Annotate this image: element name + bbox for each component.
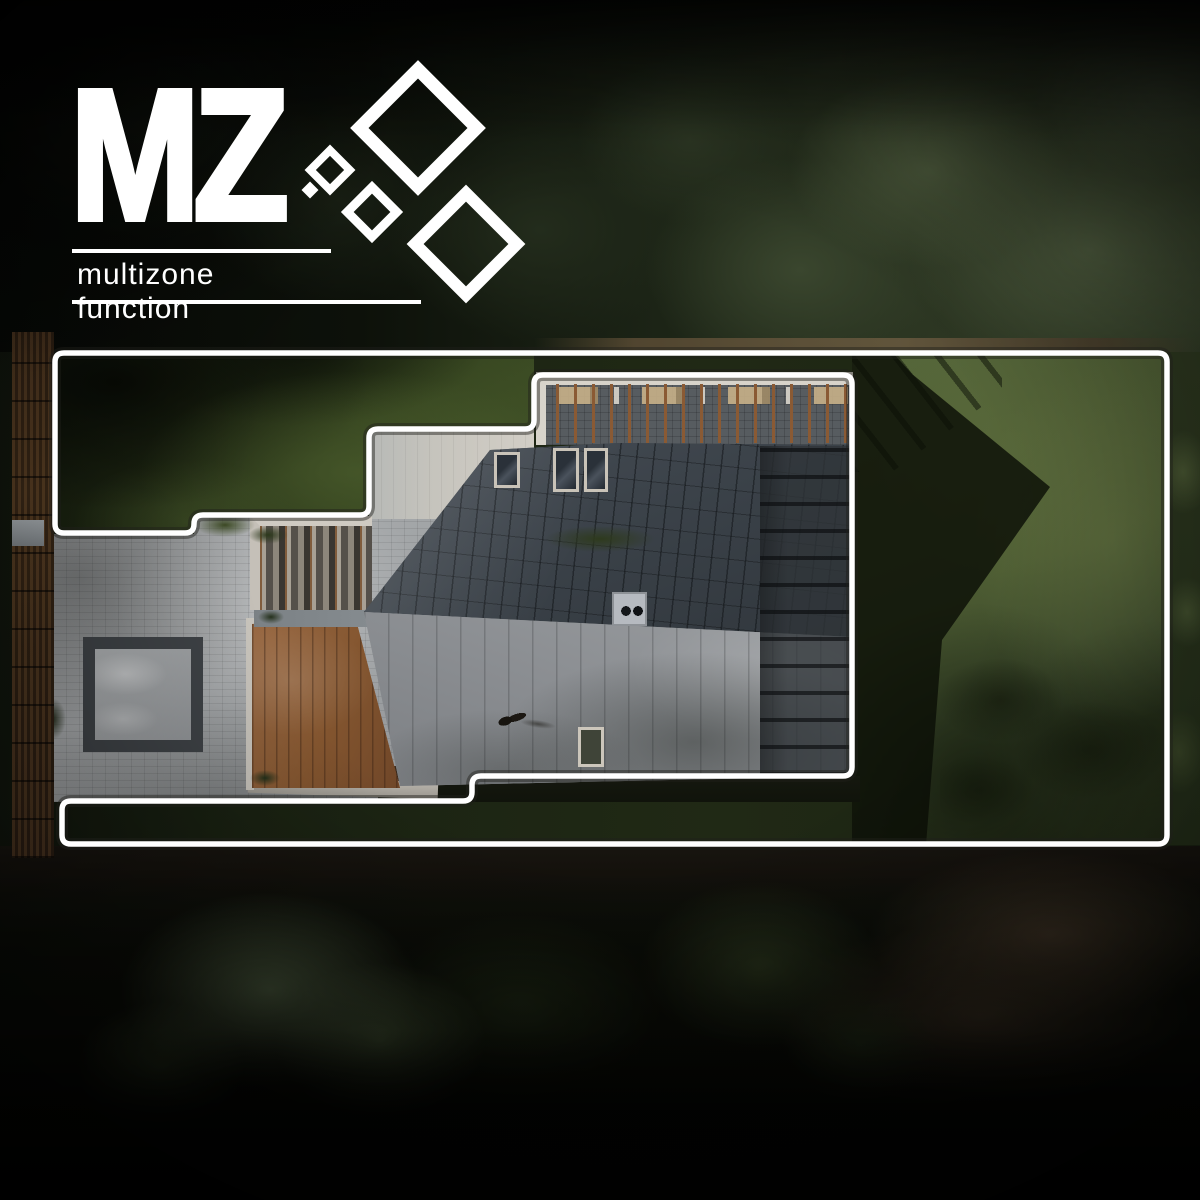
logo-rule-bottom xyxy=(72,300,421,304)
logo-rule-top xyxy=(72,249,331,253)
zone-outline-halo xyxy=(55,353,1167,844)
logo-title: MZ xyxy=(70,63,282,249)
aerial-backyard-scene: MZ multizone function xyxy=(0,0,1200,1200)
logo-subtitle: multizone function xyxy=(77,258,214,326)
